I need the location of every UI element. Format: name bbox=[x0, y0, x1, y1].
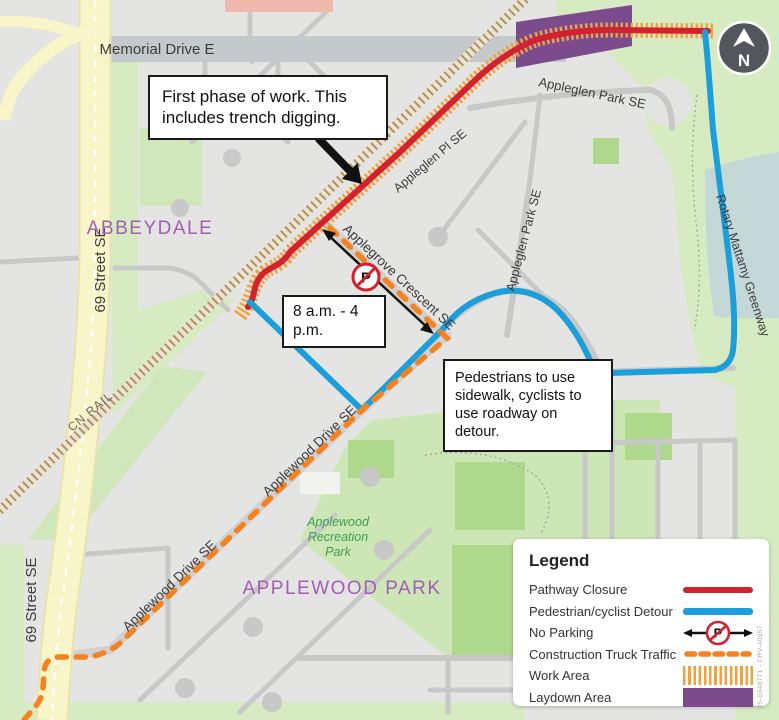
compass-label: N bbox=[738, 51, 750, 70]
legend-swatch-truck-traffic bbox=[683, 650, 753, 658]
legend: Legend Pathway Closure Pedestrian/cyclis… bbox=[513, 539, 769, 706]
label-appleglen-park-top: Appleglen Park SE bbox=[537, 74, 647, 111]
legend-row-pathway-closure: Pathway Closure bbox=[529, 579, 753, 601]
legend-title: Legend bbox=[529, 551, 753, 571]
legend-label: Work Area bbox=[529, 668, 589, 683]
label-rec-park-2: Recreation bbox=[308, 530, 368, 544]
legend-swatch-detour bbox=[683, 608, 753, 615]
legend-label: Pathway Closure bbox=[529, 582, 627, 597]
label-69-street-upper: 69 Street SE bbox=[92, 227, 109, 312]
callout-first-phase: First phase of work. This includes trenc… bbox=[148, 75, 388, 140]
legend-label: Construction Truck Traffic bbox=[529, 647, 676, 662]
no-parking-icon: P bbox=[683, 620, 753, 646]
legend-swatch-work-area bbox=[683, 666, 753, 685]
legend-row-work-area: Work Area bbox=[529, 665, 753, 687]
building bbox=[225, 0, 333, 12]
legend-swatch-pathway-closure bbox=[683, 587, 753, 594]
label-abbeydale: ABBEYDALE bbox=[87, 218, 214, 239]
callout-hours: 8 a.m. - 4 p.m. bbox=[282, 295, 386, 348]
legend-row-laydown: Laydown Area bbox=[529, 687, 753, 709]
legend-row-truck-traffic: Construction Truck Traffic bbox=[529, 644, 753, 666]
legend-label: No Parking bbox=[529, 625, 593, 640]
label-memorial-drive: Memorial Drive E bbox=[99, 41, 214, 58]
label-appleglen-pl: Appleglen Pl SE bbox=[391, 127, 469, 196]
legend-label: Laydown Area bbox=[529, 690, 611, 705]
legend-label: Pedestrian/cyclist Detour bbox=[529, 604, 673, 619]
legend-swatch-laydown bbox=[683, 688, 753, 707]
legend-row-no-parking: No Parking P bbox=[529, 622, 753, 644]
compass: N bbox=[718, 22, 770, 74]
callout-pedestrians: Pedestrians to use sidewalk, cyclists to… bbox=[443, 359, 613, 452]
label-rec-park-3: Park bbox=[325, 545, 351, 559]
legend-swatch-no-parking: P bbox=[683, 620, 753, 646]
reference-number: 25-0048771 - CRV-40957 bbox=[757, 625, 764, 708]
label-applewood-park: APPLEWOOD PARK bbox=[242, 578, 441, 599]
construction-map: P N Memorial Drive E 69 Street SE 69 Str… bbox=[0, 0, 779, 720]
label-rec-park-1: Applewood bbox=[306, 515, 370, 529]
label-69-street-lower: 69 Street SE bbox=[23, 557, 40, 642]
